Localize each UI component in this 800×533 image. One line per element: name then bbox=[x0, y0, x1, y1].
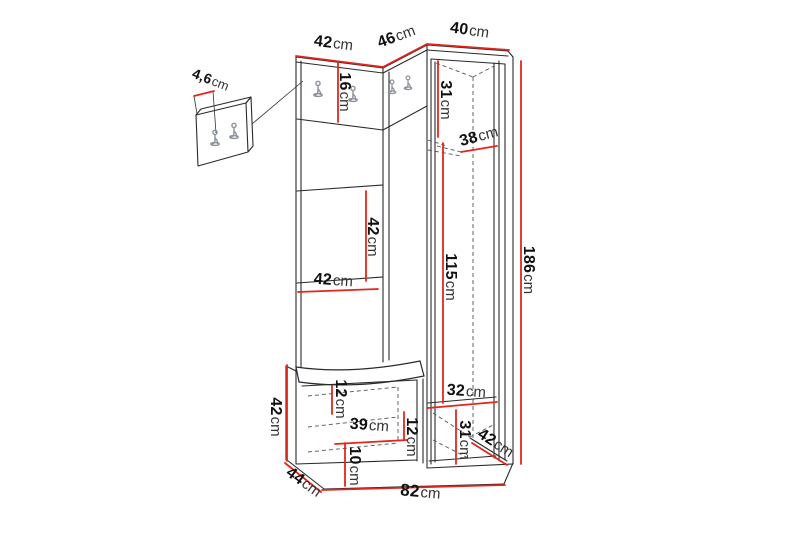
dim-label-bench-top-interior-height: 12cm bbox=[332, 379, 349, 418]
dim-label-cabinet-width: 40cm bbox=[449, 19, 490, 41]
bench-cushion bbox=[296, 361, 424, 385]
dim-label-total-height: 186cm bbox=[520, 246, 537, 294]
dim-line-cabinet-bottom-width bbox=[428, 402, 497, 408]
dim-label-middle-width: 42cm bbox=[313, 271, 353, 291]
dim-label-top-left-width: 42cm bbox=[313, 33, 354, 55]
dim-label-bench-height: 42cm bbox=[267, 397, 284, 436]
dimension-labels: 42cm 46cm 40cm 4,6cm 16cm 31cm 38cm 42cm… bbox=[190, 19, 537, 502]
dim-label-panel-thickness: 4,6cm bbox=[190, 65, 232, 94]
dim-label-cabinet-bottom-width: 32cm bbox=[446, 382, 486, 402]
dim-label-bench-bottom-interior-height: 10cm bbox=[346, 446, 363, 485]
leader-line bbox=[252, 81, 303, 124]
dim-label-bench-depth: 44cm bbox=[283, 464, 325, 501]
dim-label-bench-interior-height: 12cm bbox=[403, 417, 420, 456]
wall-hook-panel bbox=[196, 97, 253, 166]
dim-label-corner-width: 46cm bbox=[375, 22, 418, 51]
dim-label-cabinet-top-height: 31cm bbox=[437, 80, 454, 119]
diagram-canvas: 42cm 46cm 40cm 4,6cm 16cm 31cm 38cm 42cm… bbox=[0, 0, 800, 533]
dim-label-cabinet-bottom-height: 31cm bbox=[456, 420, 473, 459]
dim-line-panel-thickness bbox=[194, 91, 214, 96]
dim-line-middle-width bbox=[298, 289, 378, 292]
dim-line-top-left-width bbox=[296, 56, 383, 67]
furniture-dimension-diagram: 42cm 46cm 40cm 4,6cm 16cm 31cm 38cm 42cm… bbox=[0, 0, 800, 533]
dim-label-middle-height: 42cm bbox=[364, 217, 381, 256]
dim-label-hook-panel-height: 16cm bbox=[336, 72, 353, 111]
furniture-outline bbox=[286, 45, 513, 489]
dim-label-cabinet-interior-height: 115cm bbox=[442, 253, 459, 300]
dim-label-bench-interior-width: 39cm bbox=[349, 416, 389, 436]
dim-label-total-width: 82cm bbox=[400, 480, 442, 502]
dim-line-cabinet-width bbox=[427, 44, 509, 50]
